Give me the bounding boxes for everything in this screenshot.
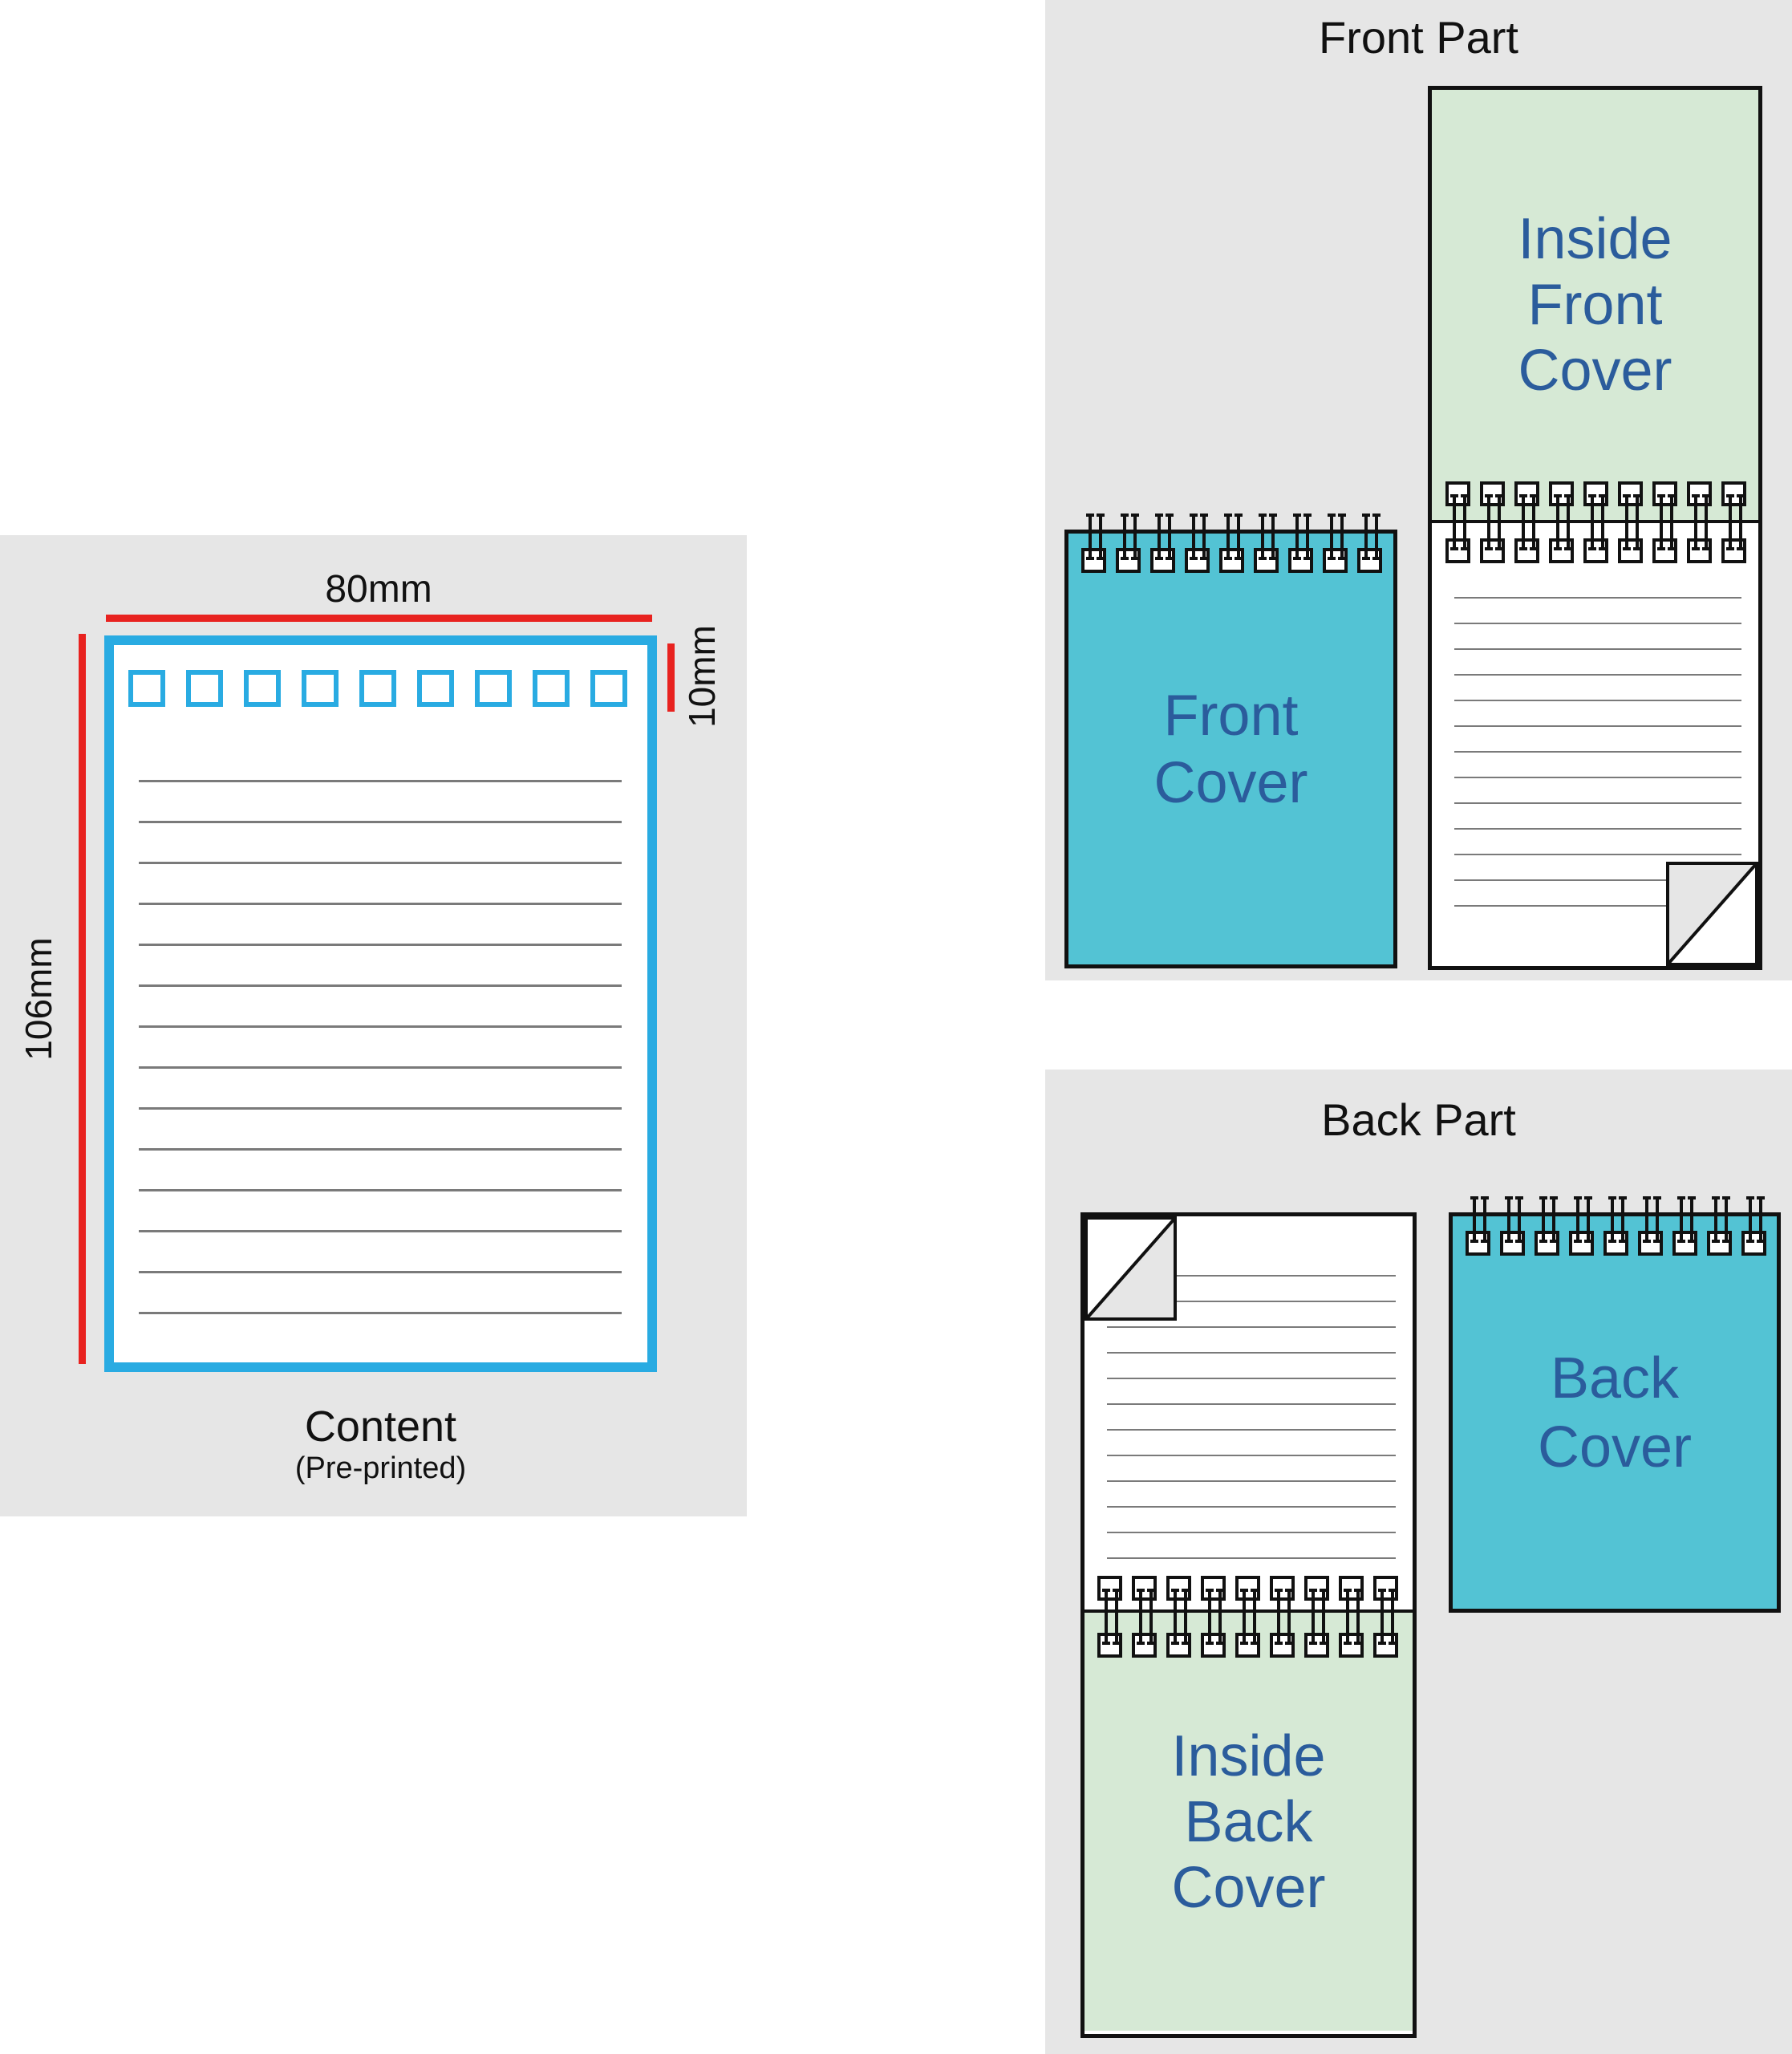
back-cover-label: BackCover [1453, 1216, 1777, 1609]
front-lined-page [1432, 523, 1758, 966]
ruled-line [1454, 700, 1741, 701]
ruled-line [139, 1025, 622, 1028]
inside-front-cover-face: InsideFrontCover [1432, 90, 1758, 523]
ruled-line [139, 1189, 622, 1191]
ruled-line [139, 862, 622, 864]
ruled-line [1454, 828, 1741, 830]
top-margin-dimension-label: 10mm [680, 625, 724, 728]
content-caption: Content [104, 1402, 657, 1451]
ruled-line [1107, 1352, 1396, 1354]
ruled-line [1107, 1506, 1396, 1508]
ruled-line [139, 944, 622, 946]
front-part-title: Front Part [1045, 11, 1792, 63]
ruled-line [1454, 725, 1741, 727]
top-margin-dimension-line [667, 643, 675, 712]
front-part-panel: Front Part FrontCover InsideFrontCover [1045, 0, 1792, 980]
ruled-line [139, 1271, 622, 1273]
ruled-lines [139, 645, 622, 1362]
ruled-line [1107, 1557, 1396, 1559]
ruled-line [139, 1312, 622, 1314]
back-part-title: Back Part [1045, 1094, 1792, 1146]
ruled-line [139, 903, 622, 905]
width-dimension-label: 80mm [218, 567, 539, 611]
front-cover-pad: FrontCover [1064, 530, 1397, 968]
ruled-line [1454, 623, 1741, 624]
inside-back-cover-face: InsideBackCover [1085, 1613, 1413, 2031]
ruled-line [1454, 597, 1741, 599]
ruled-line [1107, 1403, 1396, 1405]
front-page-folded-corner [1666, 862, 1758, 966]
content-spec-panel: 80mm 106mm 10mm Content (Pre-printed) [0, 535, 747, 1516]
ruled-line [139, 821, 622, 823]
height-dimension-label: 106mm [17, 937, 60, 1060]
height-dimension-line [79, 634, 86, 1364]
front-cover-label: FrontCover [1068, 534, 1393, 964]
inside-back-cover-label: InsideBackCover [1085, 1613, 1413, 2031]
inside-front-cover-label: InsideFrontCover [1432, 90, 1758, 520]
ruled-line [1454, 674, 1741, 676]
ruled-line [139, 780, 622, 782]
width-dimension-line [106, 615, 652, 622]
ruled-line [1107, 1326, 1396, 1328]
ruled-line [1454, 751, 1741, 753]
ruled-line [139, 984, 622, 987]
content-caption-note: (Pre-printed) [104, 1451, 657, 1486]
ruled-line [1107, 1455, 1396, 1456]
ruled-line [1107, 1378, 1396, 1379]
back-cover-pad: BackCover [1449, 1212, 1781, 1613]
ruled-line [1454, 854, 1741, 855]
ruled-line [139, 1107, 622, 1110]
inside-front-cover-pad: InsideFrontCover [1428, 86, 1762, 970]
ruled-line [139, 1230, 622, 1232]
back-part-panel: Back Part InsideBackCover BackCover [1045, 1070, 1792, 2054]
ruled-line [139, 1148, 622, 1151]
back-lined-page [1085, 1216, 1413, 1613]
ruled-line [1454, 648, 1741, 650]
ruled-line [1454, 777, 1741, 778]
back-page-folded-corner [1085, 1216, 1177, 1321]
content-page [104, 635, 657, 1372]
notepad-print-layout-diagram: 80mm 106mm 10mm Content (Pre-printed) Fr… [0, 0, 1792, 2054]
ruled-line [1107, 1429, 1396, 1431]
ruled-line [1107, 1480, 1396, 1482]
ruled-line [139, 1066, 622, 1069]
ruled-line [1107, 1532, 1396, 1533]
inside-back-cover-pad: InsideBackCover [1080, 1212, 1417, 2038]
ruled-line [1454, 802, 1741, 804]
